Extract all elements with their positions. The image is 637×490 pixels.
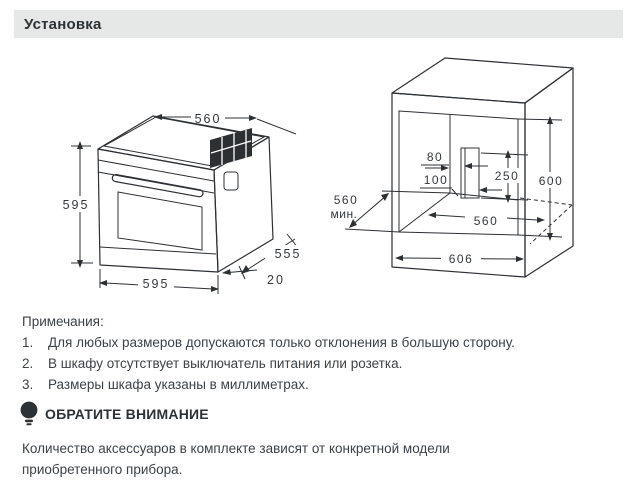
note-text: Для любых размеров допускаются только от… — [48, 332, 515, 353]
svg-text:560: 560 — [334, 193, 359, 207]
svg-text:мин.: мин. — [331, 207, 358, 221]
dim-oven-bottom-width: 595 — [99, 269, 219, 294]
lightbulb-icon — [19, 401, 39, 426]
svg-text:20: 20 — [267, 273, 285, 287]
cabinet-drawing — [392, 58, 573, 277]
dim-oven-depth: 555 — [241, 234, 311, 274]
dim-cabinet-outer-width: 606 — [395, 249, 524, 266]
note-item: 1. Для любых размеров допускаются только… — [22, 332, 618, 353]
note-number: 2. — [22, 353, 48, 374]
dim-cabinet-niche-width: 560 — [428, 212, 545, 228]
oven-dimensions-diagram: 560 595 595 555 20 — [58, 60, 338, 310]
dim-cabinet-vent-offset: 80 — [421, 150, 488, 171]
vent-grille — [210, 128, 252, 168]
section-header: Установка — [14, 10, 623, 38]
manual-page: { "header": { "title": "Установка" }, "o… — [0, 0, 637, 490]
note-item: 2. В шкафу отсутствует выключатель питан… — [22, 353, 618, 374]
svg-text:560: 560 — [474, 214, 499, 228]
svg-text:595: 595 — [63, 198, 90, 212]
cabinet-dimensions-diagram: 80 100 250 600 560 606 — [325, 48, 637, 305]
attention-label: ОБРАТИТЕ ВНИМАНИЕ — [45, 406, 209, 422]
svg-text:560: 560 — [195, 112, 222, 126]
svg-text:555: 555 — [275, 247, 302, 261]
dim-oven-top-width: 560 — [154, 112, 296, 134]
notes-section: Примечания: 1. Для любых размеров допуск… — [22, 311, 618, 395]
note-text: В шкафу отсутствует выключатель питания … — [48, 353, 402, 374]
note-item: 3. Размеры шкафа указаны в миллиметрах. — [22, 374, 618, 395]
note-text: Размеры шкафа указаны в миллиметрах. — [48, 374, 309, 395]
notes-heading: Примечания: — [22, 311, 618, 332]
svg-text:595: 595 — [143, 277, 170, 291]
svg-text:250: 250 — [495, 169, 520, 183]
note-number: 3. — [22, 374, 48, 395]
dim-cabinet-hole-height: 250 — [481, 150, 528, 203]
attention-callout: ОБРАТИТЕ ВНИМАНИЕ — [19, 401, 209, 426]
cable-cutout — [461, 148, 479, 198]
dim-oven-door-offset: 20 — [222, 266, 291, 288]
svg-text:600: 600 — [539, 174, 564, 188]
svg-text:100: 100 — [424, 173, 449, 187]
accessories-note: Количество аксессуаров в комплекте завис… — [22, 438, 522, 480]
oven-drawing — [98, 116, 273, 272]
svg-text:606: 606 — [449, 252, 474, 266]
dim-cabinet-min-depth: 560 мин. — [331, 191, 450, 232]
svg-text:80: 80 — [427, 150, 443, 164]
dim-oven-height: 595 — [60, 141, 93, 268]
page-title: Установка — [24, 16, 102, 33]
note-number: 1. — [22, 332, 48, 353]
